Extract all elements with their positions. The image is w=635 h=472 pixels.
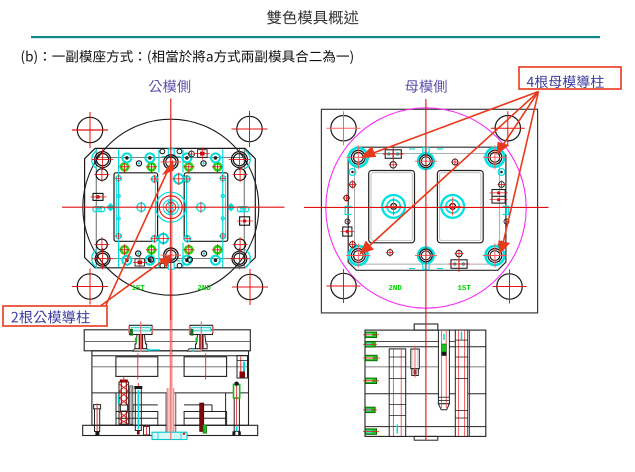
svg-text:1ST: 1ST xyxy=(458,285,472,293)
svg-text:1ST: 1ST xyxy=(132,285,146,293)
svg-text:2ND: 2ND xyxy=(389,285,403,293)
svg-text:2ND: 2ND xyxy=(198,285,212,293)
